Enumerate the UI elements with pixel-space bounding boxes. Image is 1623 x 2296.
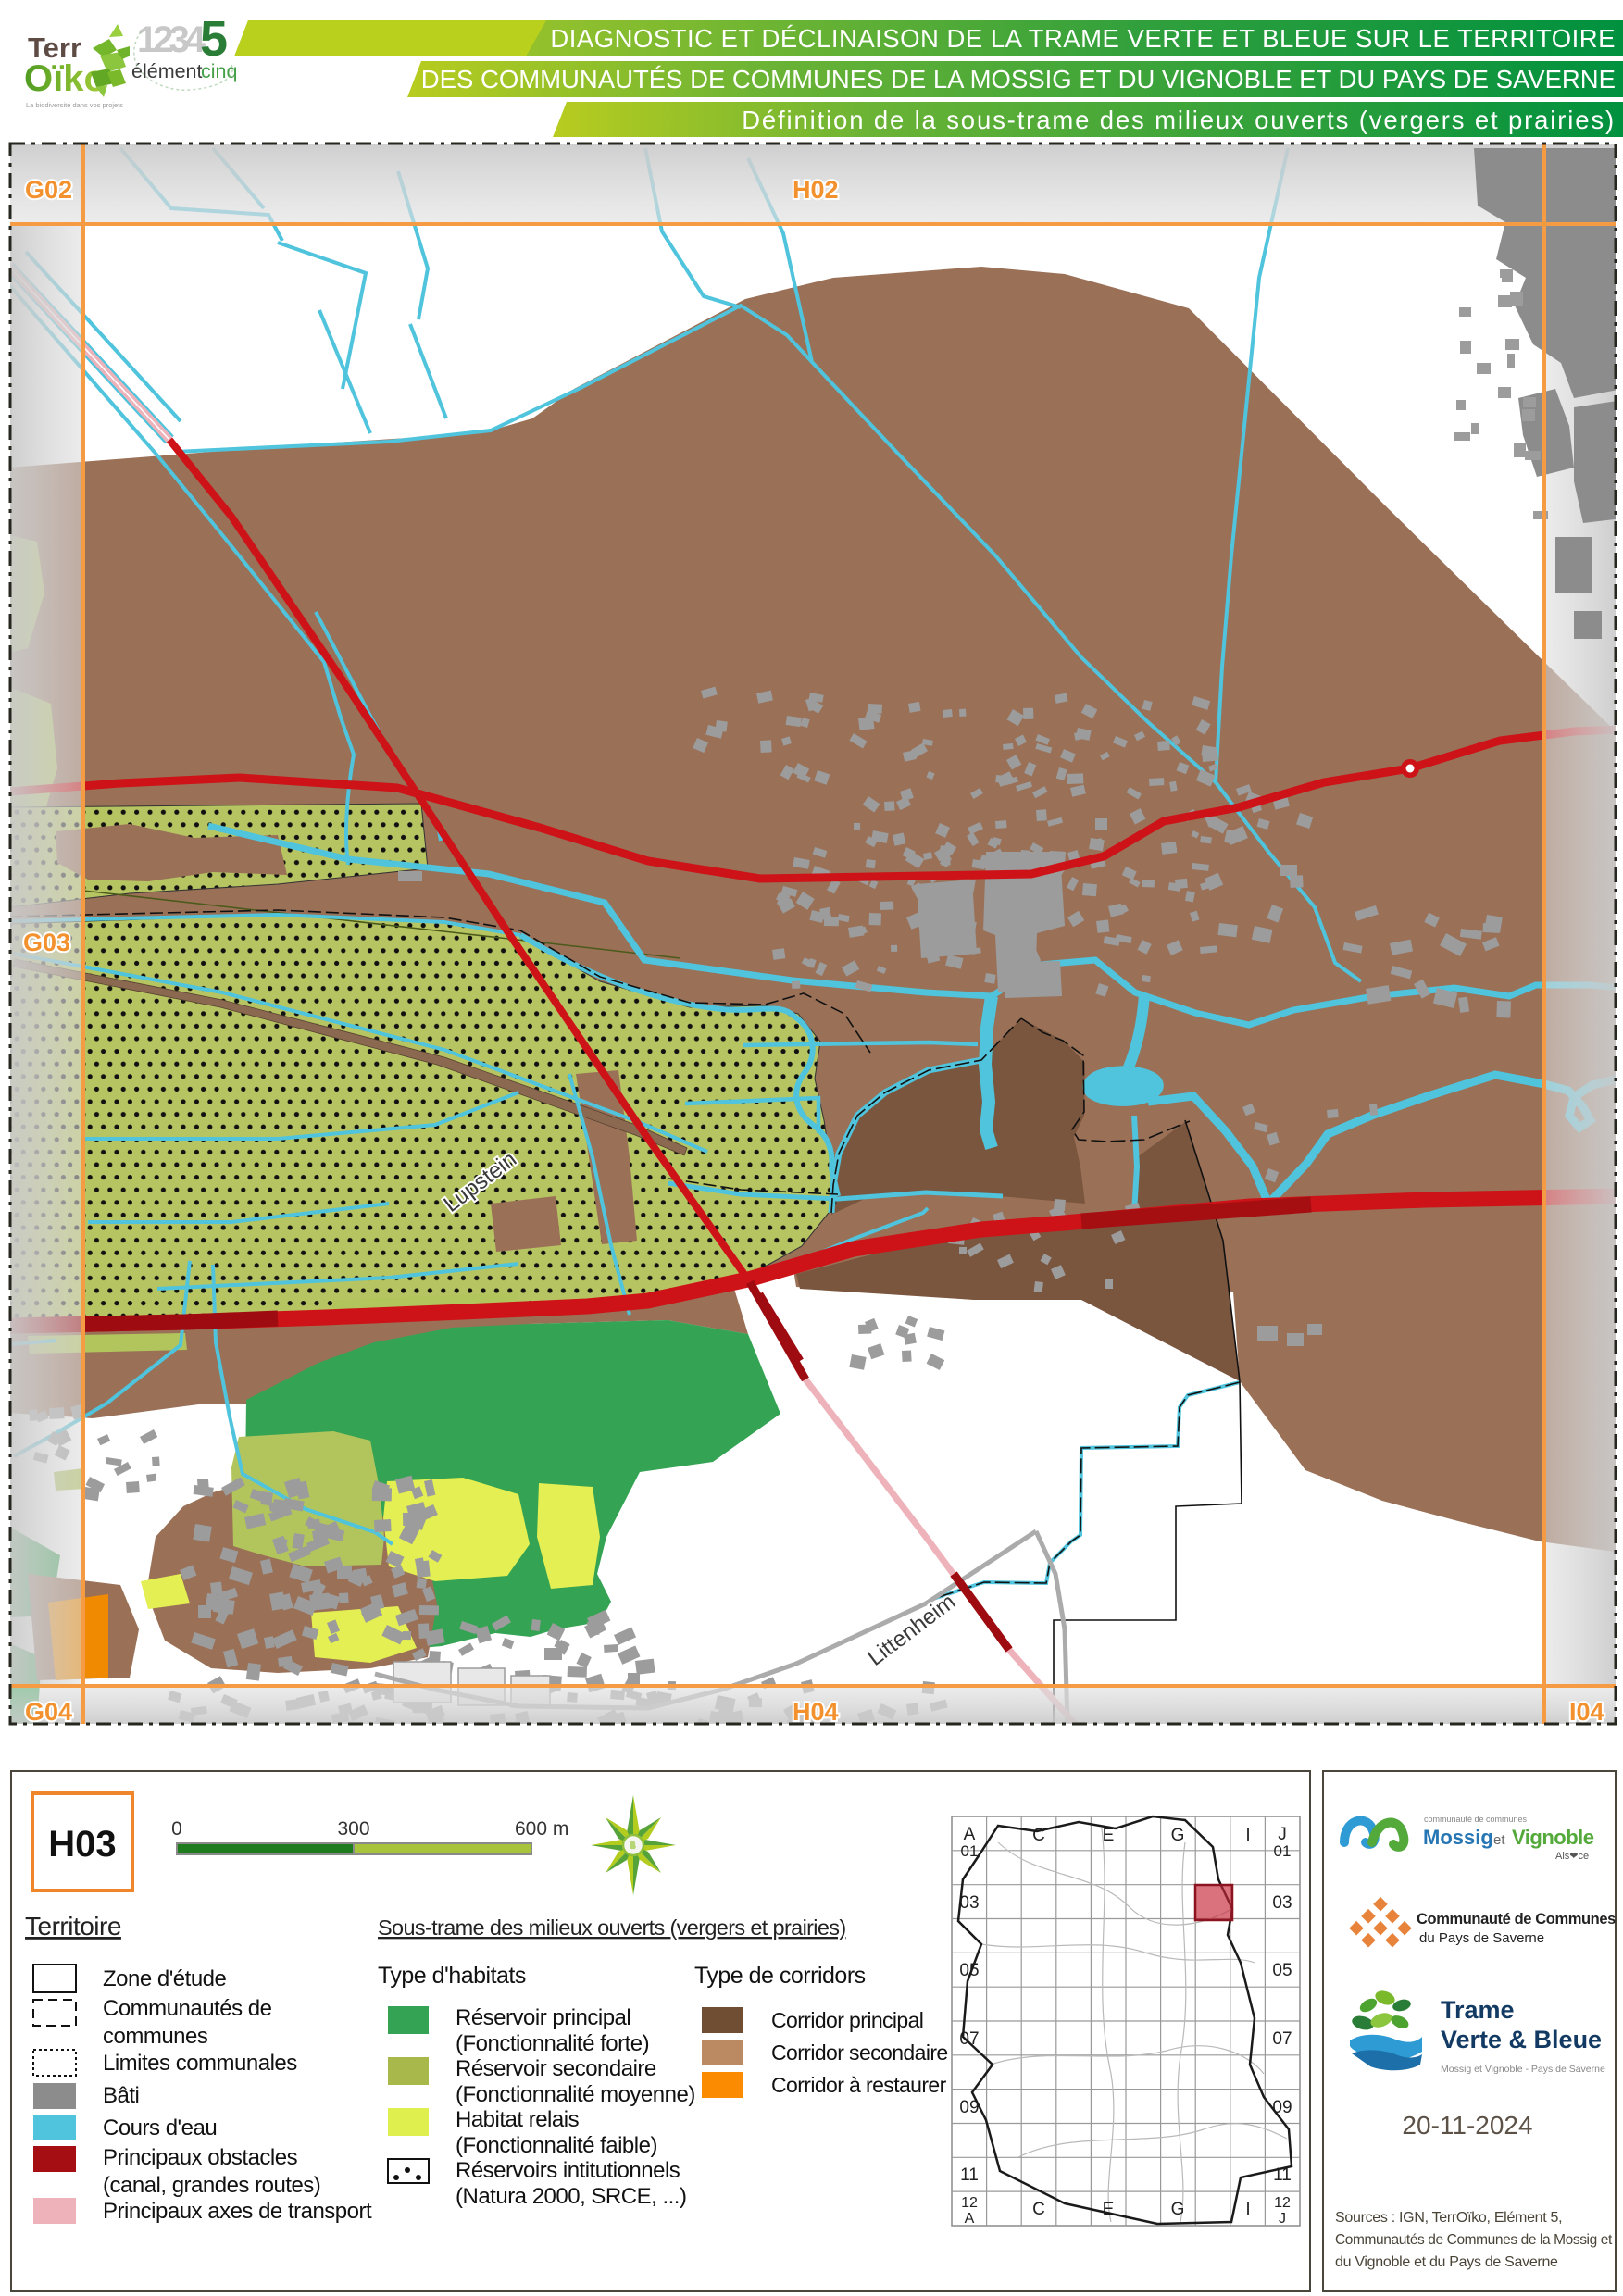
svg-text:01: 01 (1274, 1842, 1292, 1860)
svg-text:Type d'habitats: Type d'habitats (378, 1963, 526, 1989)
svg-text:09: 09 (1272, 2098, 1292, 2117)
svg-text:I: I (1245, 2200, 1250, 2219)
svg-text:Type de corridors: Type de corridors (694, 1963, 866, 1989)
svg-text:H02: H02 (793, 176, 839, 204)
svg-text:01: 01 (961, 1842, 979, 1860)
svg-text:Sous-trame des milieux ouverts: Sous-trame des milieux ouverts (vergers … (378, 1915, 846, 1940)
svg-text:Mossig et Vignoble - Pays de S: Mossig et Vignoble - Pays de Saverne (1441, 2064, 1605, 2075)
svg-text:A: A (964, 1825, 976, 1844)
svg-text:G: G (1171, 1826, 1185, 1845)
svg-text:Mossig: Mossig (1423, 1826, 1493, 1849)
svg-text:07: 07 (1272, 2029, 1292, 2049)
svg-text:Bâti: Bâti (103, 2083, 139, 2108)
svg-text:11: 11 (960, 2165, 979, 2185)
svg-text:G02: G02 (25, 176, 72, 204)
svg-text:Corridor secondaire: Corridor secondaire (771, 2040, 948, 2065)
svg-text:Communautés de Communes de la: Communautés de Communes de la Mossig et (1335, 2232, 1613, 2248)
svg-text:(Fonctionnalité forte): (Fonctionnalité forte) (456, 2031, 649, 2056)
svg-text:Zone d'étude: Zone d'étude (103, 1966, 227, 1991)
svg-text:12: 12 (1274, 2195, 1291, 2211)
svg-text:J: J (1278, 1825, 1287, 1844)
svg-text:du Vignoble et du Pays de Save: du Vignoble et du Pays de Saverne (1335, 2254, 1558, 2270)
svg-text:03: 03 (1272, 1893, 1292, 1913)
svg-text:300: 300 (337, 1818, 369, 1840)
svg-text:Réservoir principal: Réservoir principal (456, 2005, 630, 2030)
svg-text:G: G (1171, 2200, 1185, 2219)
svg-text:12: 12 (961, 2195, 978, 2211)
svg-text:(Fonctionnalité faible): (Fonctionnalité faible) (456, 2133, 657, 2158)
svg-text:et: et (1493, 1832, 1505, 1848)
svg-text:A: A (965, 2211, 975, 2227)
svg-text:I04: I04 (1569, 1698, 1604, 1726)
svg-text:Corridor principal: Corridor principal (771, 2008, 923, 2032)
svg-text:E: E (1103, 2200, 1115, 2219)
svg-text:Principaux obstacles: Principaux obstacles (103, 2145, 298, 2170)
svg-text:600 m: 600 m (515, 1818, 568, 1840)
svg-text:Sources : IGN, TerrOïko, Eléme: Sources : IGN, TerrOïko, Elément 5, (1335, 2210, 1562, 2226)
svg-text:I: I (1245, 1826, 1250, 1845)
svg-text:Territoire: Territoire (25, 1912, 121, 1940)
svg-text:du Pays de Saverne: du Pays de Saverne (1419, 1930, 1544, 1946)
svg-text:(canal, grandes routes): (canal, grandes routes) (103, 2173, 320, 2198)
svg-text:03: 03 (959, 1893, 979, 1913)
svg-text:Communauté de Communes: Communauté de Communes (1417, 1911, 1616, 1928)
svg-text:Habitat relais: Habitat relais (456, 2107, 580, 2132)
svg-text:G04: G04 (25, 1698, 72, 1726)
svg-text:C: C (1032, 1826, 1045, 1845)
svg-text:Corridor à restaurer: Corridor à restaurer (771, 2073, 947, 2097)
svg-text:(Natura 2000, SRCE, ...): (Natura 2000, SRCE, ...) (456, 2184, 686, 2209)
svg-text:Vignoble: Vignoble (1512, 1826, 1594, 1849)
svg-text:(Fonctionnalité moyenne): (Fonctionnalité moyenne) (456, 2082, 695, 2107)
svg-text:Réservoirs intitutionnels: Réservoirs intitutionnels (456, 2158, 680, 2183)
svg-text:0: 0 (171, 1818, 182, 1840)
svg-text:J: J (1279, 2211, 1286, 2227)
svg-text:G03: G03 (23, 929, 70, 956)
svg-text:communauté de communes: communauté de communes (1424, 1815, 1528, 1824)
svg-text:Verte & Bleue: Verte & Bleue (1441, 2026, 1602, 2053)
svg-text:Réservoir secondaire: Réservoir secondaire (456, 2056, 656, 2081)
svg-text:Cours d'eau: Cours d'eau (103, 2115, 217, 2140)
svg-text:20-11-2024: 20-11-2024 (1402, 2111, 1532, 2140)
svg-text:Trame: Trame (1441, 1996, 1515, 2024)
svg-text:H03: H03 (48, 1824, 116, 1865)
svg-text:Limites communales: Limites communales (103, 2051, 297, 2076)
svg-text:C: C (1032, 2200, 1045, 2219)
svg-text:Principaux axes de transport: Principaux axes de transport (103, 2199, 372, 2224)
svg-text:H04: H04 (793, 1698, 839, 1726)
svg-text:05: 05 (1272, 1961, 1292, 1980)
svg-text:Communautés de: Communautés de (103, 1996, 272, 2021)
svg-text:Als❤ce: Als❤ce (1555, 1851, 1589, 1862)
svg-text:communes: communes (103, 2024, 208, 2049)
